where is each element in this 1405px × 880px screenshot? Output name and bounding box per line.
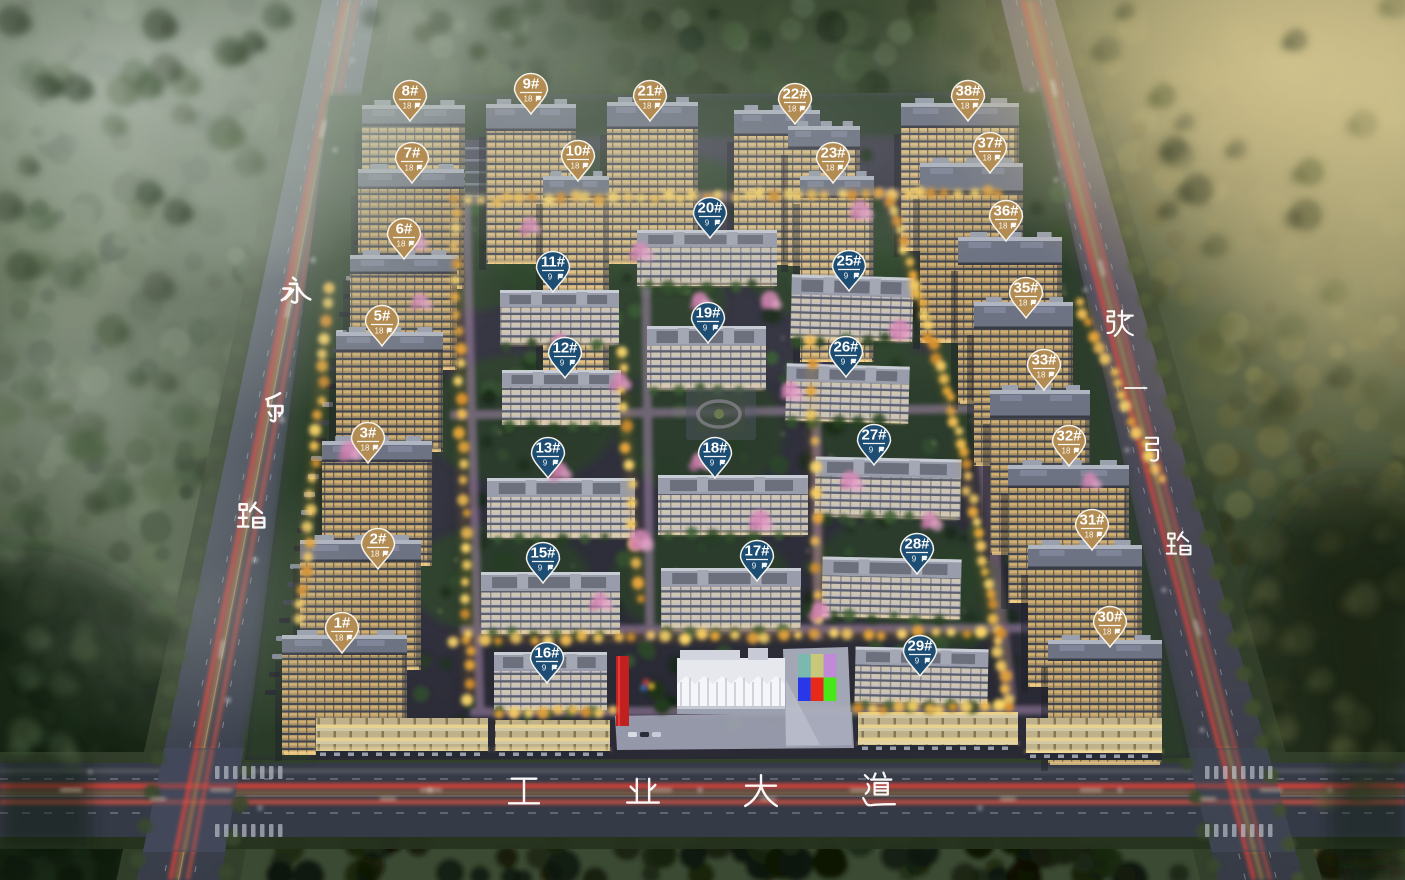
svg-text:18: 18: [1085, 531, 1094, 540]
svg-text:29#: 29#: [907, 638, 933, 655]
svg-text:13#: 13#: [535, 440, 561, 457]
svg-text:27#: 27#: [861, 427, 887, 444]
svg-text:9: 9: [869, 446, 874, 455]
svg-text:9: 9: [705, 219, 710, 228]
svg-text:7#: 7#: [404, 145, 421, 162]
svg-text:21#: 21#: [637, 83, 663, 100]
svg-text:16#: 16#: [534, 645, 560, 662]
svg-text:9: 9: [543, 459, 548, 468]
svg-text:18: 18: [788, 105, 797, 114]
svg-text:18: 18: [961, 102, 970, 111]
svg-text:6#: 6#: [396, 221, 413, 238]
svg-text:11#: 11#: [541, 254, 566, 271]
svg-text:18: 18: [405, 164, 414, 173]
svg-text:33#: 33#: [1031, 352, 1057, 369]
svg-text:30#: 30#: [1097, 609, 1123, 626]
svg-text:26#: 26#: [833, 339, 859, 356]
svg-text:22#: 22#: [782, 86, 808, 103]
svg-text:9: 9: [538, 564, 543, 573]
svg-text:28#: 28#: [904, 536, 930, 553]
svg-text:35#: 35#: [1013, 280, 1039, 297]
svg-text:9#: 9#: [523, 76, 540, 93]
svg-text:9: 9: [752, 562, 757, 571]
svg-text:18: 18: [1062, 447, 1071, 456]
svg-text:31#: 31#: [1079, 512, 1105, 529]
svg-text:18: 18: [403, 102, 412, 111]
svg-text:18: 18: [371, 550, 380, 559]
svg-text:9: 9: [542, 664, 547, 673]
svg-text:18: 18: [983, 154, 992, 163]
svg-text:2#: 2#: [370, 531, 387, 548]
svg-text:18: 18: [1019, 299, 1028, 308]
svg-text:9: 9: [844, 272, 849, 281]
svg-text:18: 18: [571, 162, 580, 171]
svg-text:32#: 32#: [1056, 428, 1082, 445]
svg-text:17#: 17#: [744, 543, 770, 560]
svg-text:18: 18: [397, 240, 406, 249]
svg-text:25#: 25#: [836, 253, 862, 270]
svg-text:18: 18: [361, 444, 370, 453]
svg-text:23#: 23#: [820, 145, 846, 162]
svg-text:8#: 8#: [402, 83, 419, 100]
svg-text:9: 9: [912, 555, 917, 564]
svg-text:12#: 12#: [552, 340, 578, 357]
svg-text:19#: 19#: [695, 305, 721, 322]
svg-text:37#: 37#: [977, 135, 1003, 152]
svg-text:9: 9: [703, 324, 708, 333]
svg-text:18: 18: [335, 634, 344, 643]
svg-text:9: 9: [560, 359, 565, 368]
svg-text:10#: 10#: [565, 143, 591, 160]
svg-text:18: 18: [1103, 628, 1112, 637]
svg-text:18: 18: [524, 95, 533, 104]
svg-text:5#: 5#: [374, 308, 391, 325]
svg-text:18: 18: [1037, 371, 1046, 380]
svg-text:18: 18: [826, 164, 835, 173]
svg-text:38#: 38#: [955, 83, 981, 100]
svg-text:9: 9: [915, 657, 920, 666]
svg-text:18: 18: [999, 222, 1008, 231]
svg-text:9: 9: [548, 273, 553, 282]
svg-text:15#: 15#: [530, 545, 556, 562]
svg-text:20#: 20#: [697, 200, 723, 217]
svg-text:36#: 36#: [993, 203, 1019, 220]
svg-text:18#: 18#: [702, 440, 728, 457]
svg-text:1#: 1#: [334, 615, 351, 632]
svg-text:18: 18: [375, 327, 384, 336]
svg-text:18: 18: [643, 102, 652, 111]
svg-text:9: 9: [710, 459, 715, 468]
svg-text:3#: 3#: [360, 425, 377, 442]
svg-text:9: 9: [841, 358, 846, 367]
